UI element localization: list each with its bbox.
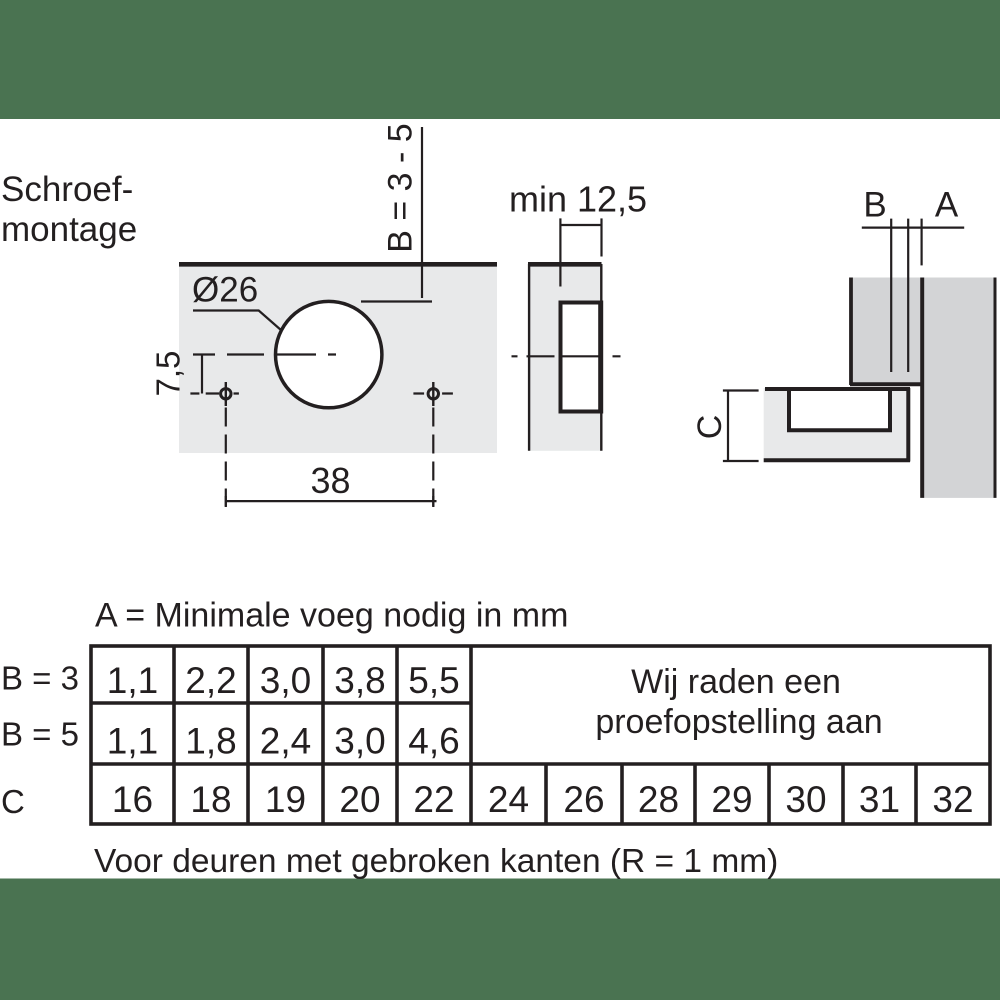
svg-text:3,8: 3,8 — [334, 660, 385, 701]
svg-text:Ø26: Ø26 — [192, 270, 258, 309]
svg-text:1,1: 1,1 — [107, 721, 158, 762]
svg-text:A: A — [935, 186, 959, 225]
svg-text:28: 28 — [638, 779, 679, 820]
svg-text:A = Minimale voeg nodig in mm: A = Minimale voeg nodig in mm — [95, 597, 568, 635]
svg-text:16: 16 — [112, 779, 153, 820]
svg-text:B = 3: B = 3 — [1, 659, 79, 696]
svg-text:3,0: 3,0 — [334, 721, 385, 762]
svg-text:min 12,5: min 12,5 — [509, 179, 647, 220]
svg-text:38: 38 — [310, 460, 350, 501]
svg-text:4,6: 4,6 — [408, 721, 459, 762]
svg-text:22: 22 — [413, 779, 454, 820]
svg-text:B = 5: B = 5 — [1, 716, 79, 753]
svg-text:1,1: 1,1 — [107, 660, 158, 701]
svg-text:1,8: 1,8 — [185, 721, 236, 762]
svg-text:24: 24 — [488, 779, 529, 820]
svg-text:20: 20 — [339, 779, 380, 820]
svg-text:Voor deuren met gebroken kante: Voor deuren met gebroken kanten (R = 1 m… — [94, 843, 778, 880]
svg-text:montage: montage — [1, 210, 137, 249]
svg-text:Wij raden een: Wij raden een — [631, 663, 841, 701]
svg-text:30: 30 — [785, 779, 826, 820]
svg-text:Schroef-: Schroef- — [1, 170, 133, 209]
svg-text:B: B — [863, 186, 886, 225]
svg-text:18: 18 — [190, 779, 231, 820]
svg-text:29: 29 — [711, 779, 752, 820]
svg-text:3,0: 3,0 — [260, 660, 311, 701]
svg-text:19: 19 — [265, 779, 306, 820]
svg-text:B = 3 - 5: B = 3 - 5 — [382, 123, 420, 252]
svg-text:2,4: 2,4 — [260, 721, 311, 762]
svg-text:2,2: 2,2 — [185, 660, 236, 701]
svg-text:26: 26 — [563, 779, 604, 820]
svg-text:C: C — [691, 415, 729, 440]
svg-text:proefopstelling aan: proefopstelling aan — [595, 703, 882, 741]
svg-text:31: 31 — [859, 779, 900, 820]
svg-text:5,5: 5,5 — [408, 660, 459, 701]
svg-text:32: 32 — [932, 779, 973, 820]
svg-text:C: C — [1, 783, 25, 820]
svg-text:7,5: 7,5 — [150, 351, 187, 397]
